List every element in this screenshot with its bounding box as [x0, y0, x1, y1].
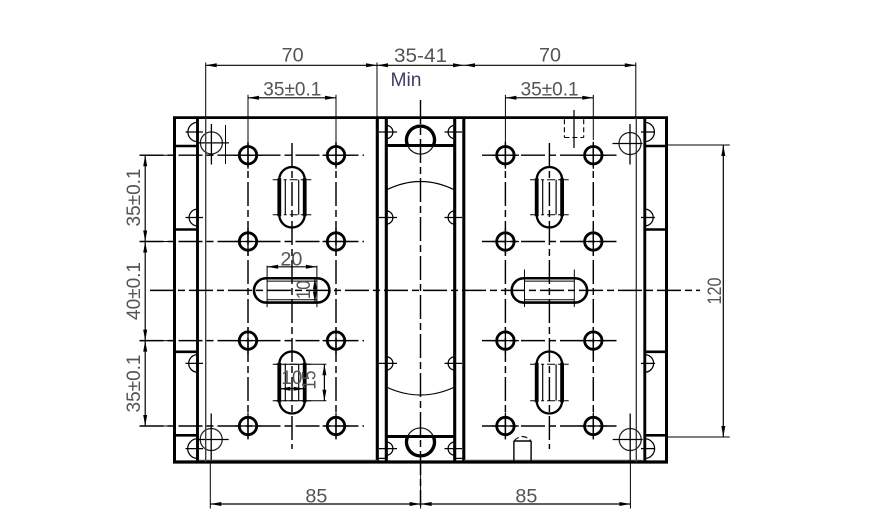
svg-text:35±0.1: 35±0.1 [123, 355, 145, 413]
svg-text:120: 120 [704, 277, 726, 304]
svg-text:Min: Min [391, 69, 422, 91]
svg-text:20: 20 [280, 249, 302, 271]
svg-text:85: 85 [305, 486, 327, 508]
svg-text:35±0.1: 35±0.1 [123, 169, 145, 227]
svg-text:10: 10 [293, 280, 315, 299]
svg-text:70: 70 [539, 44, 561, 66]
svg-text:85: 85 [515, 486, 537, 508]
svg-text:35±0.1: 35±0.1 [263, 78, 321, 100]
svg-text:40±0.1: 40±0.1 [123, 262, 145, 320]
svg-text:35-41: 35-41 [394, 45, 447, 67]
svg-text:35±0.1: 35±0.1 [521, 78, 579, 100]
svg-text:15: 15 [299, 370, 321, 389]
svg-text:70: 70 [282, 44, 304, 66]
